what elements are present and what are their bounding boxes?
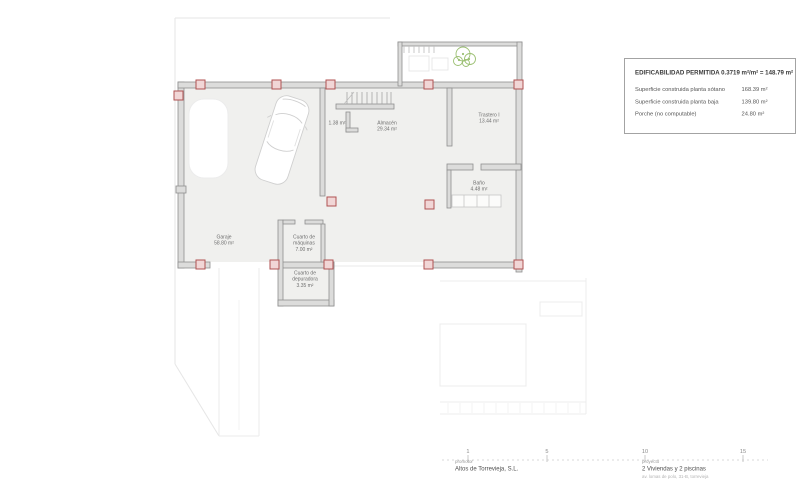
legend-row: Superficie construida planta baja 139.80…: [635, 98, 788, 110]
scale-tick-5: 5: [537, 448, 558, 454]
legend-row-value: 168.39 m²: [742, 86, 768, 92]
project-address: av. lomas de polo, 31-B, torrevieja: [642, 474, 708, 479]
room-label-hueco: 1.38 m²: [322, 120, 352, 126]
room-area: 1.38 m²: [322, 120, 352, 126]
room-area: 4.48 m²: [459, 186, 499, 192]
project-name: 2 Viviendas y 2 piscinas: [642, 465, 706, 472]
legend-rows: Superficie construida planta sótano 168.…: [635, 86, 788, 123]
bathroom-vanity: [452, 195, 501, 207]
room-label-trastero: Trastero I 13.44 m²: [469, 112, 509, 125]
room-name: Cuarto de máquinas: [287, 234, 322, 247]
room-label-garaje: Garaje 58.80 m²: [204, 234, 244, 247]
legend-row-value: 139.80 m²: [742, 98, 768, 104]
legend-row: Superficie construida planta sótano 168.…: [635, 86, 788, 98]
promoter-name: Altos de Torrevieja, S.L.: [455, 465, 518, 472]
room-area: 3.35 m²: [288, 283, 323, 289]
project-label: proyecto: [642, 459, 659, 464]
room-name: Cuarto de depuradora: [288, 270, 323, 283]
room-area: 13.44 m²: [469, 118, 509, 124]
legend-row-label: Superficie construida planta baja: [635, 98, 742, 104]
scale-tick-1: 1: [458, 448, 479, 454]
legend-row-label: Superficie construida planta sótano: [635, 86, 742, 92]
legend-row: Porche (no computable) 24.80 m²: [635, 110, 788, 122]
room-label-almacen: Almacén 29.34 m²: [367, 120, 407, 133]
room-area: 58.80 m²: [204, 240, 244, 246]
legend-title: EDIFICABILIDAD PERMITIDA 0.3719 m²/m² = …: [635, 69, 793, 76]
covered-car: [189, 99, 228, 178]
room-label-depuradora: Cuarto de depuradora 3.35 m²: [288, 270, 323, 289]
scale-tick-10: 10: [635, 448, 656, 454]
edificability-legend: EDIFICABILIDAD PERMITIDA 0.3719 m²/m² = …: [624, 58, 796, 134]
ground-floor-overlay-lines: [334, 266, 586, 414]
room-area: 7.00 m²: [287, 247, 322, 253]
patio-furniture-outline: [409, 56, 448, 71]
scale-ruler: [442, 455, 768, 462]
room-area: 29.34 m²: [367, 126, 407, 132]
room-label-bano: Baño 4.48 m²: [459, 180, 499, 193]
legend-row-value: 24.80 m²: [742, 110, 765, 116]
promoter-label: promotor: [455, 459, 473, 464]
scale-tick-15: 15: [733, 448, 754, 454]
room-label-maquinas: Cuarto de máquinas 7.00 m²: [287, 234, 322, 253]
driveway-ramp-lines: [219, 268, 259, 436]
plant-icon: [454, 47, 476, 67]
floorplan-sheet: Garaje 58.80 m² Almacén 29.34 m² Traster…: [0, 0, 800, 480]
patio-stairs: [404, 46, 434, 53]
legend-row-label: Porche (no computable): [635, 110, 742, 116]
